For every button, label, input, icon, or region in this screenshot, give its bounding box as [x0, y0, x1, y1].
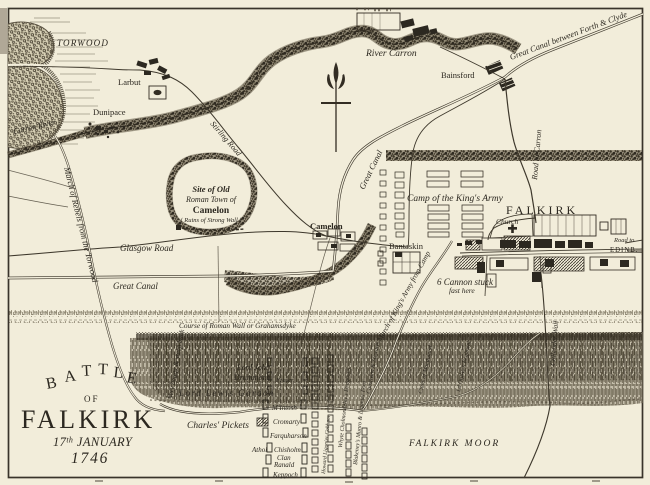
svg-text:Fraser: Fraser: [275, 377, 294, 384]
svg-text:Drummond: Drummond: [233, 373, 271, 382]
svg-text:Road to: Road to: [613, 237, 635, 244]
svg-text:Site of Old: Site of Old: [192, 184, 230, 194]
svg-text:Keppoch: Keppoch: [272, 471, 298, 479]
svg-text:TORWOOD: TORWOOD: [57, 38, 109, 48]
svg-text:fast here: fast here: [449, 286, 475, 295]
svg-text:17th JANUARY: 17th JANUARY: [53, 435, 134, 449]
svg-text:River Carron: River Carron: [365, 49, 417, 59]
svg-text:L: L: [113, 364, 125, 382]
svg-text:Athol: Athol: [251, 446, 267, 454]
svg-text:FALKIRK: FALKIRK: [21, 405, 156, 434]
svg-text:Charles' Pickets: Charles' Pickets: [187, 421, 249, 431]
svg-text:Camp of the King's Army: Camp of the King's Army: [407, 193, 504, 204]
svg-text:Great Canal: Great Canal: [113, 281, 158, 291]
svg-text:FALKIRK: FALKIRK: [506, 203, 578, 217]
svg-text:T: T: [81, 362, 92, 380]
svg-text:Lord Lewis Gordon: Lord Lewis Gordon: [178, 388, 275, 398]
svg-text:T: T: [98, 361, 109, 378]
svg-text:Bainsford: Bainsford: [441, 70, 475, 80]
svg-text:Church: Church: [496, 217, 518, 226]
svg-text:Lord John: Lord John: [236, 363, 270, 372]
svg-text:Dunipace: Dunipace: [93, 107, 126, 117]
svg-text:Camelon: Camelon: [310, 221, 343, 231]
svg-text:Ranald: Ranald: [273, 461, 295, 469]
svg-text:( Ruins of Strong Wall ): ( Ruins of Strong Wall ): [180, 217, 241, 224]
svg-text:OF: OF: [84, 394, 100, 404]
svg-text:Bantaskin: Bantaskin: [389, 241, 424, 251]
svg-text:Farquharson: Farquharson: [269, 432, 307, 440]
svg-text:Roman Town of: Roman Town of: [185, 195, 238, 204]
svg-text:FALKIRK MOOR: FALKIRK MOOR: [408, 439, 500, 449]
svg-text:EDINB.: EDINB.: [610, 247, 638, 254]
svg-text:Chisholm: Chisholm: [274, 446, 301, 454]
svg-text:Camelon: Camelon: [193, 206, 230, 216]
svg-text:Course of Roman Wall or Graham: Course of Roman Wall or Grahamsdyke: [179, 321, 296, 330]
svg-text:Glasgow Road: Glasgow Road: [120, 243, 174, 253]
svg-text:1746: 1746: [71, 450, 109, 467]
svg-text:Cromarty: Cromarty: [273, 418, 301, 426]
svg-text:Larbut: Larbut: [118, 77, 141, 87]
svg-text:M′Intosh: M′Intosh: [271, 404, 297, 412]
